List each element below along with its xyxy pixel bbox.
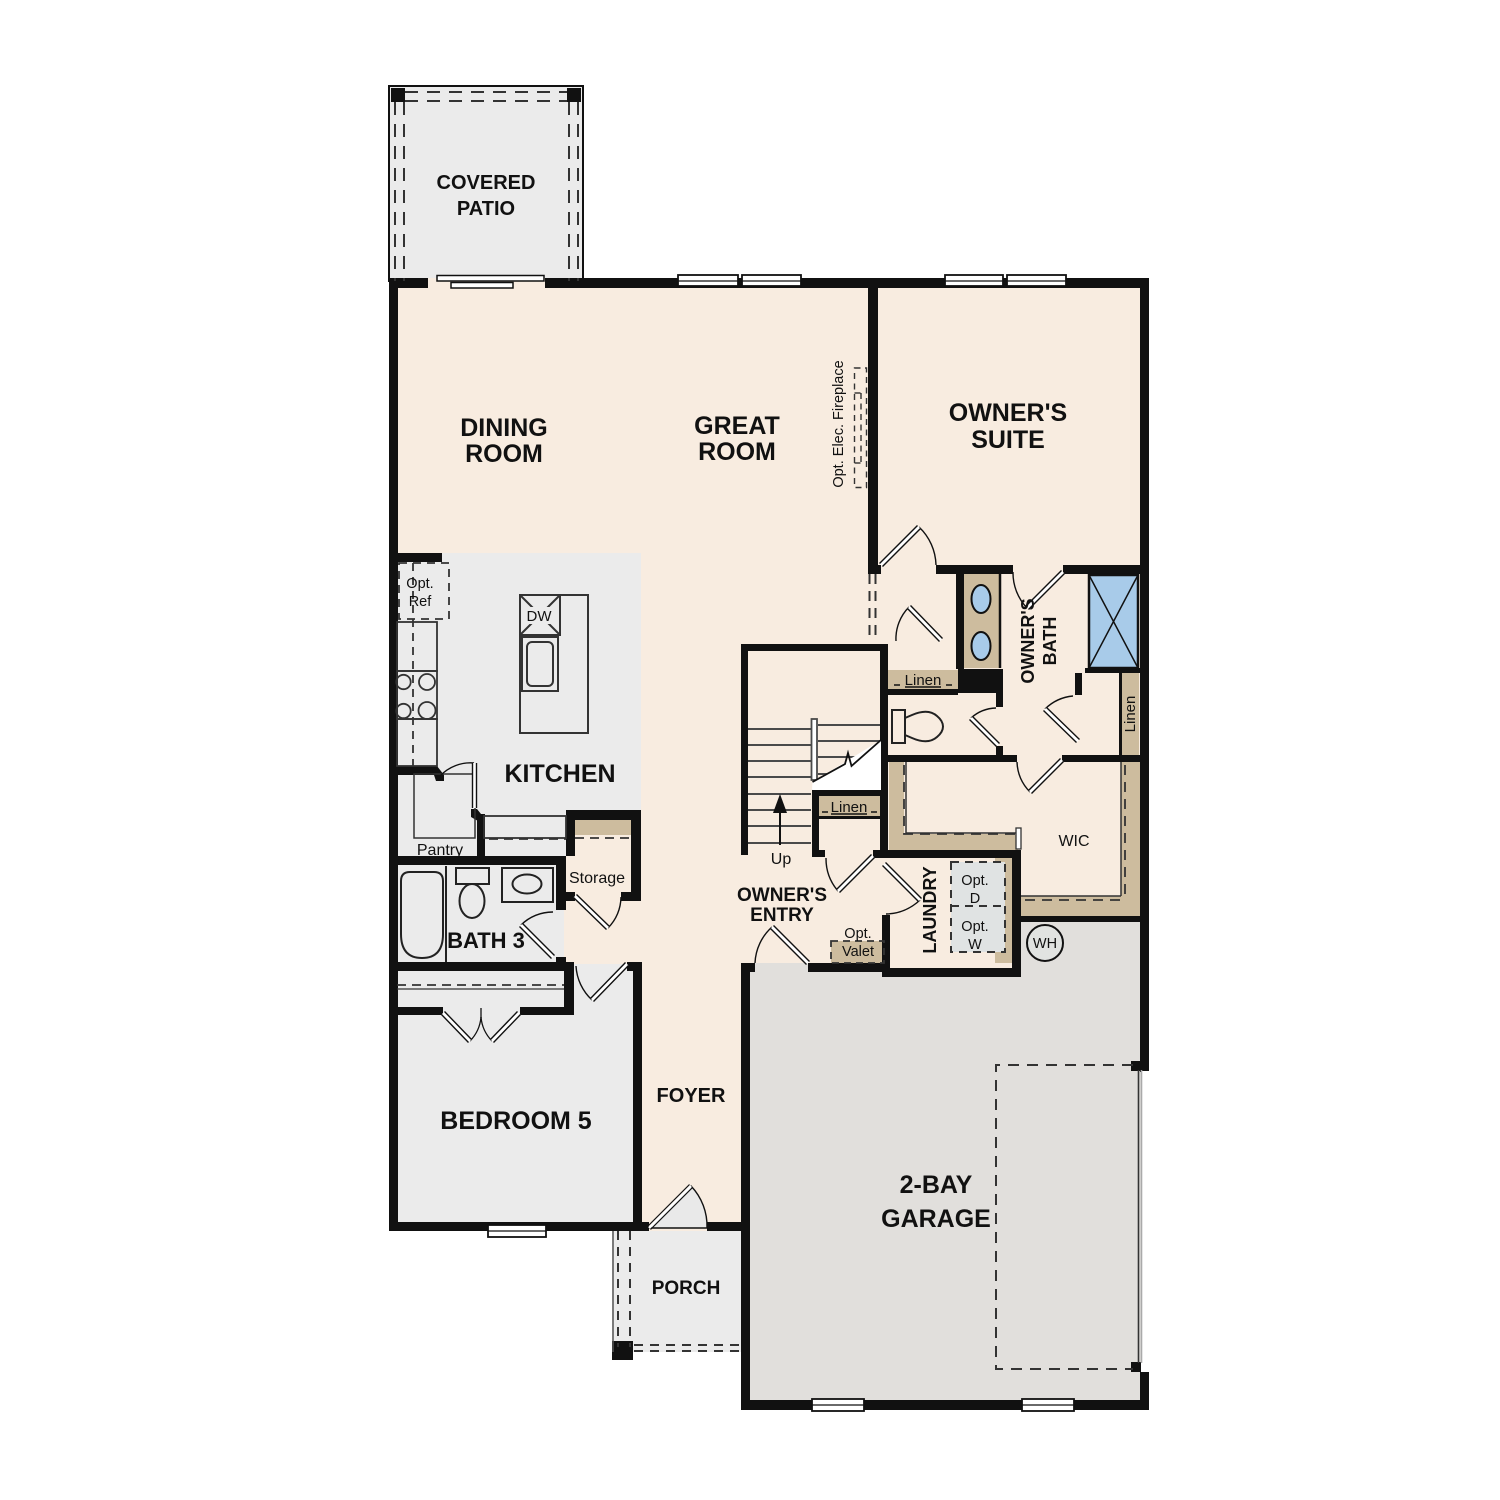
svg-text:BEDROOM 5: BEDROOM 5 <box>440 1107 592 1135</box>
svg-text:KITCHEN: KITCHEN <box>504 760 615 788</box>
svg-text:ROOM: ROOM <box>698 438 776 466</box>
svg-text:Storage: Storage <box>569 870 625 887</box>
svg-text:DINING: DINING <box>460 414 548 442</box>
svg-text:Valet: Valet <box>842 944 874 960</box>
svg-text:BATH 3: BATH 3 <box>447 928 525 953</box>
svg-text:GREAT: GREAT <box>694 412 780 440</box>
svg-text:GARAGE: GARAGE <box>881 1205 991 1233</box>
svg-text:PATIO: PATIO <box>457 198 515 220</box>
svg-text:Linen: Linen <box>1122 696 1139 733</box>
svg-text:PORCH: PORCH <box>652 1278 721 1299</box>
svg-text:Opt.: Opt. <box>961 873 988 889</box>
svg-text:Opt.: Opt. <box>844 926 871 942</box>
svg-text:OWNER'S: OWNER'S <box>1018 598 1038 683</box>
svg-text:FOYER: FOYER <box>657 1085 726 1107</box>
svg-text:COVERED: COVERED <box>437 172 536 194</box>
svg-text:LAUNDRY: LAUNDRY <box>920 866 940 953</box>
svg-text:Opt.: Opt. <box>406 576 433 592</box>
svg-text:Opt.: Opt. <box>961 919 988 935</box>
svg-text:Ref: Ref <box>409 594 433 610</box>
svg-text:ROOM: ROOM <box>465 440 543 468</box>
svg-text:Opt. Elec. Fireplace: Opt. Elec. Fireplace <box>831 360 847 487</box>
svg-text:ENTRY: ENTRY <box>750 905 814 926</box>
svg-text:Pantry: Pantry <box>417 842 463 859</box>
svg-text:BATH: BATH <box>1040 617 1060 666</box>
svg-text:SUITE: SUITE <box>971 426 1045 454</box>
svg-text:WH: WH <box>1033 936 1057 952</box>
svg-text:OWNER'S: OWNER'S <box>737 885 827 906</box>
svg-text:WIC: WIC <box>1058 833 1089 850</box>
svg-text:OWNER'S: OWNER'S <box>949 399 1067 427</box>
svg-text:DW: DW <box>527 608 553 625</box>
svg-text:2-BAY: 2-BAY <box>900 1171 973 1199</box>
svg-text:D: D <box>970 891 980 907</box>
svg-text:Up: Up <box>771 851 792 868</box>
svg-text:W: W <box>968 937 982 953</box>
